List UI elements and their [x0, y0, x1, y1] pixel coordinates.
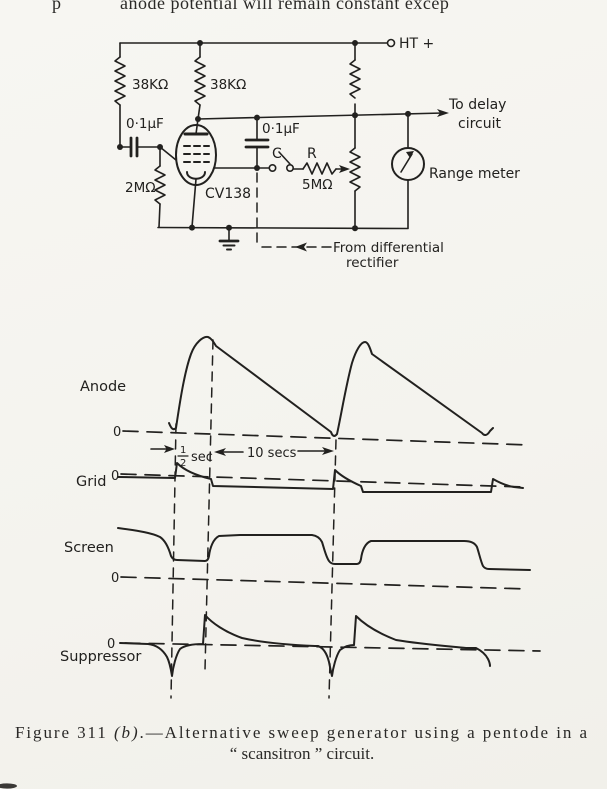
suppressor-waveform: 0 Suppressor	[60, 615, 540, 676]
anode-waveform: Anode 0	[80, 337, 530, 445]
valve-grid-lead	[160, 147, 176, 160]
resistor-5m-name: R	[307, 146, 317, 162]
resistor-38k-anode	[195, 57, 205, 105]
to-delay-label-2: circuit	[458, 116, 501, 132]
anode-trace	[169, 337, 493, 436]
resistor-38k-anode-label: 38KΩ	[210, 77, 246, 93]
meter-needle-arrowhead	[406, 151, 414, 158]
grid-waveform: Grid 0	[76, 463, 523, 492]
screen-zero-line	[121, 577, 528, 589]
switch-terminal-right	[287, 165, 293, 171]
top-text-fragment: p anode potential will remain constant e…	[52, 0, 449, 13]
figure-caption: Figure 311 (b).—Alternative sweep genera…	[15, 723, 587, 763]
screen-zero-label: 0	[111, 571, 119, 586]
anode-branch-wire	[198, 43, 200, 119]
valve-grids	[184, 146, 209, 162]
rectifier-arrowhead	[295, 243, 307, 252]
resistor-2m	[155, 166, 165, 204]
anode-zero-line	[123, 431, 530, 445]
switch-terminal-left	[269, 165, 275, 171]
to-delay-label-1: To delay	[448, 97, 506, 113]
resistor-dropper	[350, 60, 360, 98]
ground-symbol	[220, 228, 238, 250]
resistor-2m-label: 2MΩ	[125, 180, 156, 196]
cap-grid-label: 0·1μF	[126, 116, 164, 132]
cap-coupling-plates	[246, 140, 268, 147]
flyback-frac-num: 1	[180, 445, 186, 456]
caption-prefix: Figure 311	[15, 723, 112, 742]
resistor-5m-value: 5MΩ	[302, 177, 333, 193]
switch-label: C	[272, 146, 282, 162]
figure-311b: p anode potential will remain constant e…	[0, 0, 607, 789]
potentiometer-track	[350, 148, 360, 191]
range-meter-label: Range meter	[429, 166, 520, 182]
caption-line-1: Figure 311 (b).—Alternative sweep genera…	[15, 723, 587, 742]
screen-trace	[118, 528, 530, 570]
anode-zero-label: 0	[113, 425, 121, 440]
valve-label: CV138	[205, 186, 251, 202]
resistor-38k-left-label: 38KΩ	[132, 77, 168, 93]
scanned-page: p anode potential will remain constant e…	[0, 0, 607, 789]
grid-label: Grid	[76, 474, 106, 490]
ht-label: HT +	[399, 36, 434, 52]
suppressor-label: Suppressor	[60, 649, 141, 665]
circuit-diagram: HT + 38KΩ 38KΩ 0·1μF 2MΩ CV138 To	[115, 36, 520, 271]
resistor-38k-left	[115, 57, 125, 105]
resistor-5m	[303, 163, 336, 174]
anode-label: Anode	[80, 379, 126, 395]
scan-smudge	[0, 783, 17, 788]
ht-terminal	[388, 40, 395, 47]
cap-coupling-label: 0·1μF	[262, 121, 300, 137]
waveform-diagram: Anode 0 1 2 sec 10 secs Grid 0	[60, 337, 540, 698]
caption-figure-letter: (b)	[114, 723, 138, 742]
suppressor-trace	[120, 615, 490, 676]
flyback-unit: sec	[191, 450, 213, 465]
from-rectifier-label-1: From differential	[333, 240, 444, 256]
grid-zero-line	[121, 474, 523, 487]
screen-label: Screen	[64, 540, 114, 556]
valve-cathode-lead	[192, 179, 196, 227]
from-rectifier-label-2: rectifier	[346, 255, 399, 271]
caption-rest: .—Alternative sweep generator using a pe…	[140, 723, 588, 742]
valve-cathode	[187, 172, 205, 179]
sweep-duration-label: 10 secs	[247, 446, 297, 461]
screen-waveform: Screen 0	[64, 528, 530, 589]
caption-line-2: “ scansitron ” circuit.	[230, 744, 374, 763]
earth-rail	[158, 228, 408, 229]
cap-grid-plates	[131, 138, 137, 156]
top-fragment-left: p	[52, 0, 61, 13]
grid-trace	[118, 463, 523, 492]
top-fragment-main: anode potential will remain constant exc…	[120, 0, 449, 13]
pentode-valve: CV138	[160, 119, 251, 227]
